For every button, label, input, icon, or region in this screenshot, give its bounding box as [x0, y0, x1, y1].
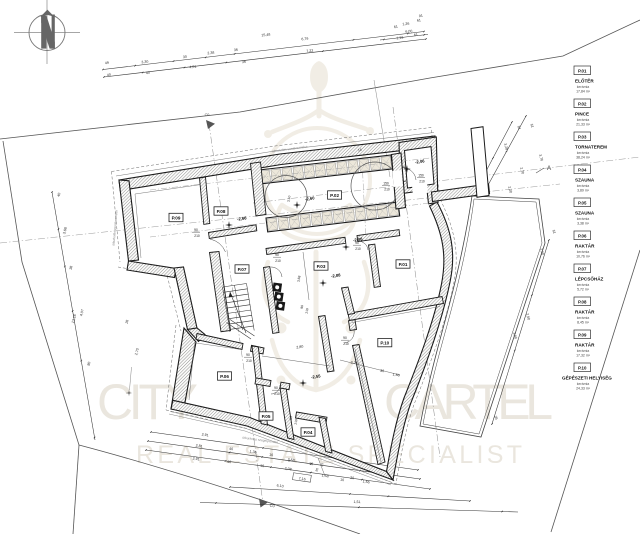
svg-text:RAKTÁR: RAKTÁR [575, 243, 595, 249]
svg-text:P.04: P.04 [304, 430, 313, 435]
svg-text:7,22: 7,22 [306, 49, 313, 54]
svg-text:P.07: P.07 [238, 267, 247, 272]
svg-text:kerámia: kerámia [577, 118, 590, 122]
svg-text:4,01: 4,01 [189, 65, 196, 70]
svg-text:40: 40 [146, 71, 150, 75]
svg-text:6,00: 6,00 [405, 29, 412, 34]
svg-text:RAKTÁR: RAKTÁR [575, 342, 595, 348]
svg-text:kerámia: kerámia [577, 184, 590, 188]
svg-text:40: 40 [227, 460, 232, 465]
svg-text:kerámia: kerámia [577, 85, 590, 89]
svg-text:10: 10 [260, 464, 265, 469]
svg-text:ELŐTÉR: ELŐTÉR [575, 77, 594, 84]
svg-text:kerámia: kerámia [577, 217, 590, 221]
svg-text:210: 210 [194, 234, 200, 238]
svg-text:17,84 m²: 17,84 m² [576, 90, 591, 94]
svg-text:38,24 m²: 38,24 m² [576, 156, 591, 160]
svg-text:10: 10 [309, 462, 314, 467]
svg-text:1,19: 1,19 [396, 36, 403, 41]
svg-text:P.10: P.10 [380, 340, 389, 345]
svg-text:49: 49 [105, 61, 109, 65]
svg-text:21,33 m²: 21,33 m² [576, 123, 591, 127]
svg-text:61: 61 [417, 18, 421, 22]
svg-text:kerámia: kerámia [577, 382, 590, 386]
svg-text:P.02: P.02 [578, 101, 587, 106]
svg-text:36: 36 [242, 60, 246, 64]
svg-text:SZAUNA: SZAUNA [575, 178, 595, 183]
svg-text:P.05: P.05 [262, 414, 271, 419]
svg-text:61: 61 [414, 33, 418, 37]
svg-text:30: 30 [183, 55, 187, 59]
svg-text:210: 210 [343, 342, 349, 346]
svg-text:P.04: P.04 [578, 167, 587, 172]
svg-text:P.10: P.10 [578, 365, 587, 370]
svg-text:P.03: P.03 [578, 134, 587, 139]
svg-text:TORNATEREM: TORNATEREM [575, 145, 607, 150]
svg-text:24,33 m²: 24,33 m² [576, 387, 591, 391]
svg-text:P.07: P.07 [578, 266, 587, 271]
svg-text:90: 90 [194, 228, 198, 232]
svg-text:10,76 m²: 10,76 m² [576, 255, 591, 259]
svg-text:PINCE: PINCE [575, 112, 589, 117]
svg-text:P.03: P.03 [317, 264, 326, 269]
svg-text:kerámia: kerámia [577, 316, 590, 320]
svg-text:210: 210 [305, 308, 310, 314]
svg-text:P.06: P.06 [220, 374, 229, 379]
svg-text:kerámia: kerámia [577, 349, 590, 353]
svg-text:10: 10 [269, 453, 274, 458]
svg-text:RAKTÁR: RAKTÁR [575, 309, 595, 315]
svg-text:SZAUNA: SZAUNA [575, 211, 595, 216]
svg-text:P.01: P.01 [399, 262, 408, 267]
svg-text:P.02: P.02 [330, 193, 339, 198]
svg-text:kerámia: kerámia [577, 151, 590, 155]
svg-text:20: 20 [350, 476, 355, 481]
svg-text:36: 36 [234, 48, 238, 52]
svg-text:40: 40 [107, 73, 111, 77]
svg-text:8,45 m²: 8,45 m² [577, 321, 590, 325]
svg-text:210: 210 [274, 392, 280, 396]
svg-text:GÉPÉSZETI HELYISÉG: GÉPÉSZETI HELYISÉG [562, 374, 612, 381]
svg-text:C0: C0 [205, 113, 210, 117]
svg-text:P.08: P.08 [578, 299, 587, 304]
svg-text:LÉPCSŐHÁZ: LÉPCSŐHÁZ [575, 275, 604, 282]
svg-text:210: 210 [246, 359, 252, 363]
svg-text:3,38 m²: 3,38 m² [577, 222, 590, 226]
svg-text:90: 90 [275, 253, 279, 257]
svg-text:1,26: 1,26 [402, 22, 409, 27]
svg-text:5,72 m²: 5,72 m² [577, 288, 590, 292]
svg-text:A: A [547, 165, 552, 172]
svg-text:40: 40 [229, 447, 234, 452]
svg-text:10: 10 [340, 478, 345, 483]
svg-text:210: 210 [384, 188, 390, 192]
svg-text:90: 90 [289, 416, 293, 420]
svg-text:P.08: P.08 [217, 209, 226, 214]
svg-text:P.09: P.09 [578, 332, 587, 337]
svg-text:15: 15 [358, 148, 362, 152]
svg-text:210: 210 [355, 247, 361, 251]
svg-text:1,51: 1,51 [353, 500, 360, 504]
svg-text:90: 90 [274, 386, 278, 390]
svg-text:P.06: P.06 [578, 233, 587, 238]
svg-text:210: 210 [275, 259, 281, 263]
svg-text:6,79: 6,79 [301, 37, 308, 42]
svg-text:P.09: P.09 [172, 215, 181, 220]
svg-text:kerámia: kerámia [577, 250, 590, 254]
svg-text:17,32 m²: 17,32 m² [576, 354, 591, 358]
svg-text:kerámia: kerámia [577, 283, 590, 287]
svg-text:90: 90 [355, 241, 359, 245]
svg-text:150: 150 [418, 174, 424, 178]
svg-text:90: 90 [343, 336, 347, 340]
svg-text:90: 90 [246, 353, 250, 357]
svg-text:3,89 m²: 3,89 m² [577, 189, 590, 193]
svg-text:90: 90 [300, 305, 304, 309]
svg-text:150: 150 [383, 182, 389, 186]
svg-text:3,30: 3,30 [141, 60, 148, 65]
svg-text:2,38: 2,38 [207, 51, 214, 56]
svg-text:P.05: P.05 [578, 200, 587, 205]
svg-text:210: 210 [294, 419, 299, 425]
svg-text:210: 210 [419, 180, 425, 184]
svg-text:P.01: P.01 [578, 68, 587, 73]
svg-text:91: 91 [419, 14, 423, 18]
svg-text:61: 61 [394, 25, 398, 29]
